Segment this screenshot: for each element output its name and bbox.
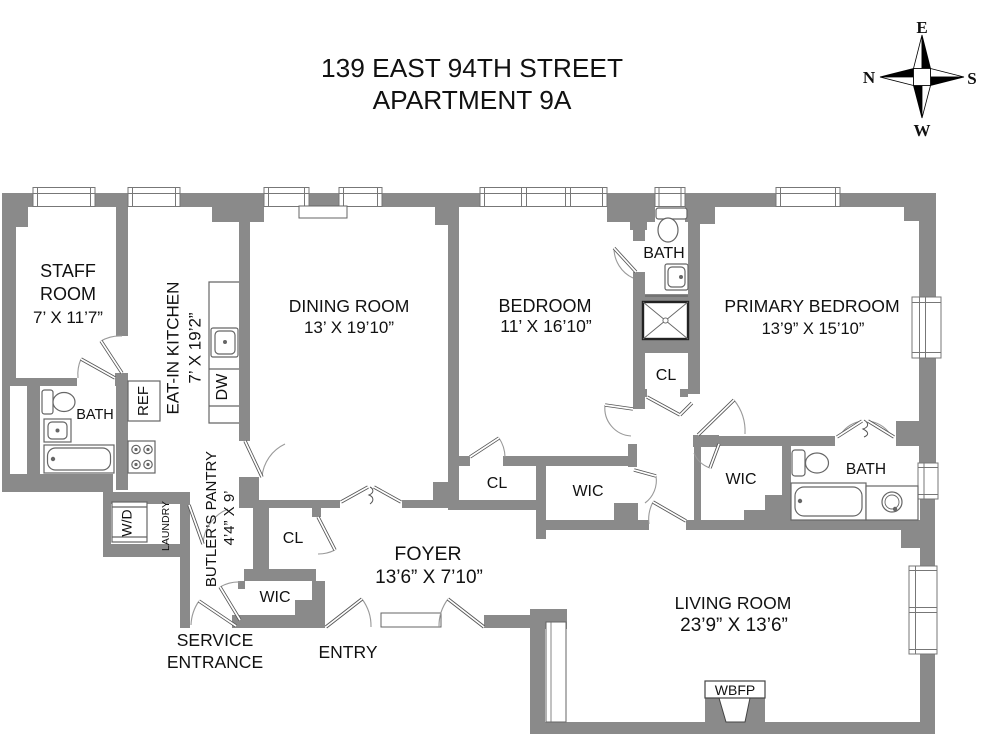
svg-text:LAUNDRY: LAUNDRY <box>160 501 172 551</box>
svg-text:BATH: BATH <box>846 461 886 478</box>
svg-text:CL: CL <box>283 530 304 547</box>
svg-text:LIVING ROOM: LIVING ROOM <box>675 593 792 613</box>
svg-text:WBFP: WBFP <box>715 682 755 698</box>
svg-text:WIC: WIC <box>572 483 603 500</box>
svg-text:11’ X 16’10”: 11’ X 16’10” <box>500 316 592 336</box>
svg-text:CL: CL <box>487 475 508 492</box>
svg-text:ROOM: ROOM <box>40 284 96 304</box>
svg-text:23’9” X 13’6”: 23’9” X 13’6” <box>680 615 788 636</box>
svg-text:REF: REF <box>135 386 152 416</box>
svg-text:EAT-IN KITCHEN: EAT-IN KITCHEN <box>163 282 182 415</box>
svg-text:DINING ROOM: DINING ROOM <box>289 296 410 316</box>
svg-text:N: N <box>863 68 876 87</box>
svg-text:139 EAST 94TH STREET: 139 EAST 94TH STREET <box>321 53 623 83</box>
svg-text:S: S <box>967 69 976 88</box>
svg-text:APARTMENT 9A: APARTMENT 9A <box>373 85 572 115</box>
svg-text:13’6” X 7’10”: 13’6” X 7’10” <box>375 567 483 588</box>
svg-text:PRIMARY BEDROOM: PRIMARY BEDROOM <box>724 296 899 316</box>
svg-text:W: W <box>914 121 931 140</box>
svg-text:E: E <box>916 18 927 37</box>
svg-text:SERVICE: SERVICE <box>177 630 254 650</box>
svg-text:BATH: BATH <box>643 245 684 262</box>
svg-text:BATH: BATH <box>76 407 114 423</box>
svg-text:WIC: WIC <box>725 471 756 488</box>
svg-text:ENTRY: ENTRY <box>319 642 378 662</box>
svg-text:7’ X 19’2”: 7’ X 19’2” <box>185 312 204 384</box>
svg-text:BEDROOM: BEDROOM <box>498 296 591 316</box>
svg-text:13’ X 19’10”: 13’ X 19’10” <box>304 318 394 337</box>
svg-text:DW: DW <box>214 373 231 401</box>
svg-text:STAFF: STAFF <box>40 261 96 281</box>
svg-text:BUTLER’S PANTRY: BUTLER’S PANTRY <box>203 451 220 587</box>
svg-text:4’4” X 9’: 4’4” X 9’ <box>221 490 238 545</box>
svg-text:W/D: W/D <box>119 509 135 536</box>
svg-text:13’9” X 15’10”: 13’9” X 15’10” <box>762 320 865 338</box>
svg-text:CL: CL <box>656 367 677 384</box>
svg-text:ENTRANCE: ENTRANCE <box>167 652 263 672</box>
svg-text:FOYER: FOYER <box>394 543 461 565</box>
svg-text:7’ X 11’7”: 7’ X 11’7” <box>33 308 103 327</box>
svg-text:WIC: WIC <box>259 589 290 606</box>
